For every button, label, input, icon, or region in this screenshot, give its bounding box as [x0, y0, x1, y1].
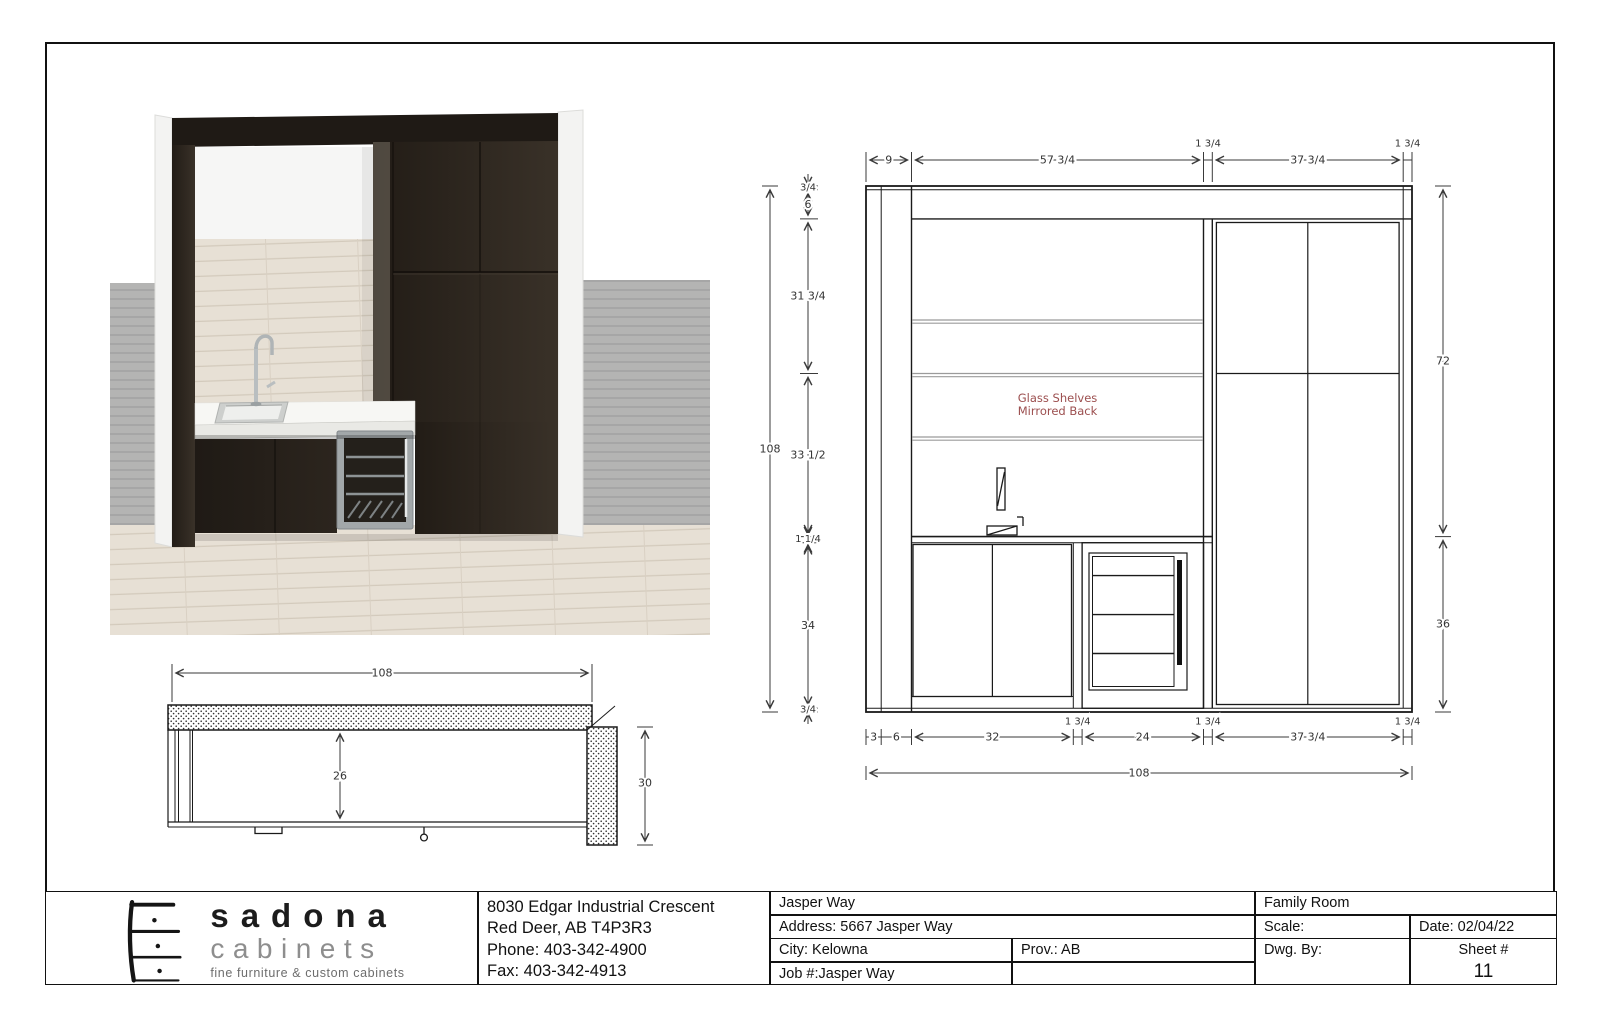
- dim-top-0: 9: [885, 154, 892, 167]
- dim-bottom-2: 32: [985, 731, 999, 744]
- dim-left-2: 31 3/4: [790, 290, 825, 303]
- right-lower-cabinet: [415, 422, 558, 534]
- company-address-line1: 8030 Edgar Industrial Crescent: [487, 897, 714, 919]
- fridge-handle-elevation: [1177, 560, 1182, 665]
- elevation-view: Glass Shelves Mirrored Back: [740, 130, 1500, 800]
- elevation-note-1: Glass Shelves: [1018, 391, 1098, 405]
- cabinet-outline: [866, 186, 1412, 712]
- dim-right-0: 72: [1436, 355, 1450, 368]
- sink-basin: [222, 405, 282, 420]
- city-cell: City: Kelowna: [770, 938, 1012, 962]
- base-cabinet: [195, 439, 337, 533]
- sheet-number-value: 11: [1419, 961, 1548, 983]
- logo-cell: sadona cabinets fine furniture & custom …: [45, 891, 478, 985]
- niche-floor: [195, 239, 373, 422]
- countertop-section: [168, 705, 592, 730]
- dim-bottom-overall: 108: [1129, 767, 1150, 780]
- sink-symbol: [255, 827, 282, 834]
- elevation-structure: [866, 186, 1412, 712]
- plan-structure: [168, 705, 617, 845]
- left-stile: [172, 145, 195, 547]
- plan-dim-width: 108: [372, 667, 393, 680]
- dim-right-1: 36: [1436, 618, 1450, 631]
- dim-left-overall: 108: [760, 443, 781, 456]
- dim-top-2: 1 3/4: [1195, 139, 1221, 150]
- dim-left-6: 3/4: [800, 705, 816, 716]
- cabinet-sketch-icon: [118, 897, 196, 983]
- dim-left-0: 3/4: [800, 182, 816, 193]
- right-upper-cabinet: [373, 141, 558, 422]
- date-cell: Date: 02/04/22: [1410, 915, 1557, 939]
- sheet-number-label: Sheet #: [1419, 942, 1548, 958]
- dim-bottom-1: 6: [893, 731, 900, 744]
- logo-name: sadona: [210, 899, 404, 933]
- company-address-cell: 8030 Edgar Industrial Crescent Red Deer,…: [478, 891, 770, 985]
- plan-view: 108 26 30: [150, 640, 690, 870]
- faucet-elevation: [987, 468, 1023, 535]
- logo-tagline: fine furniture & custom cabinets: [210, 967, 404, 980]
- dim-left-1: 6: [805, 198, 812, 211]
- dim-bottom-3: 1 3/4: [1065, 717, 1091, 728]
- logo-word2: cabinets: [210, 934, 404, 963]
- province-cell: Prov.: AB: [1012, 938, 1255, 962]
- sheet-number-cell: Sheet # 11: [1410, 938, 1557, 985]
- dim-bottom-0: 3: [870, 731, 877, 744]
- blank-cell: [1012, 962, 1255, 986]
- room-cell: Family Room: [1255, 891, 1557, 915]
- project-name-cell: Jasper Way: [770, 891, 1255, 915]
- company-fax: Fax: 403-342-4913: [487, 961, 714, 983]
- dim-top-3: 37 3/4: [1290, 154, 1325, 167]
- company-address-line2: Red Deer, AB T4P3R3: [487, 918, 714, 940]
- cabinet-unit: [155, 110, 583, 547]
- plan-dim-depth: 26: [333, 770, 347, 783]
- end-panel-section: [587, 727, 617, 845]
- project-address-cell: Address: 5667 Jasper Way: [770, 915, 1255, 939]
- render-3d: [110, 85, 710, 635]
- company-phone: Phone: 403-342-4900: [487, 940, 714, 962]
- dim-left-3: 33 1/2: [790, 449, 825, 462]
- niche-back-wall: [195, 147, 373, 242]
- dim-left-4: 1 1/4: [795, 534, 821, 545]
- wine-fridge-elevation: [1082, 543, 1203, 709]
- job-number-cell: Job #:Jasper Way: [770, 962, 1012, 986]
- drawn-by-cell: Dwg. By:: [1255, 938, 1410, 985]
- dim-bottom-5: 1 3/4: [1195, 717, 1221, 728]
- wine-fridge: [337, 431, 413, 529]
- glass-shelves: [912, 320, 1203, 440]
- niche-jamb: [373, 142, 390, 422]
- dim-bottom-7: 1 3/4: [1395, 717, 1421, 728]
- dim-left-5: 34: [801, 619, 815, 632]
- plan-dim-height: 30: [638, 777, 652, 790]
- faucet-symbol: [421, 834, 428, 841]
- elevation-note-2: Mirrored Back: [1018, 404, 1098, 418]
- dim-top-1: 57 3/4: [1040, 154, 1075, 167]
- plan-dimensions: [172, 664, 653, 845]
- dim-bottom-4: 24: [1136, 731, 1150, 744]
- scale-cell: Scale:: [1255, 915, 1410, 939]
- dim-top-4: 1 3/4: [1395, 139, 1421, 150]
- dim-bottom-6: 37 3/4: [1290, 731, 1325, 744]
- drawing-sheet: 108 26 30: [0, 0, 1600, 1035]
